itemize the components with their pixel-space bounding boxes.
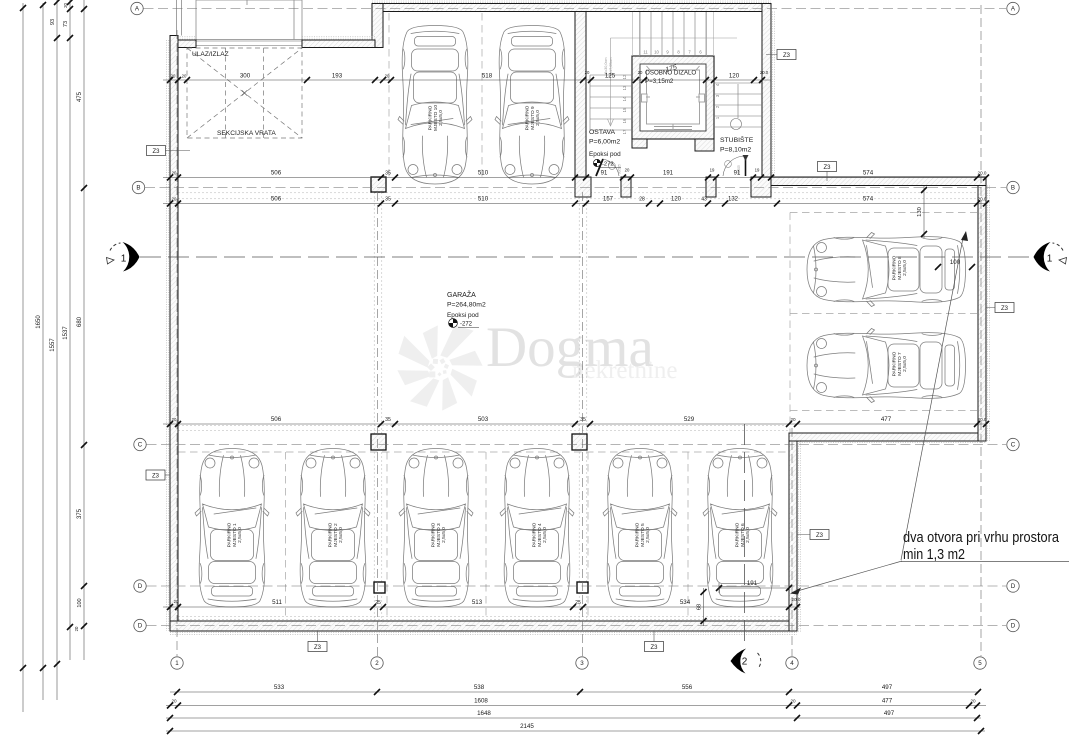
- svg-text:2,5x5,0: 2,5x5,0: [902, 260, 908, 276]
- svg-text:120: 120: [729, 73, 740, 80]
- svg-text:477: 477: [882, 698, 893, 705]
- svg-text:16: 16: [622, 118, 627, 123]
- svg-text:2,5x5,0: 2,5x5,0: [438, 110, 444, 126]
- svg-text:MJESTO 3: MJESTO 3: [436, 523, 442, 547]
- svg-text:2,5x5,0: 2,5x5,0: [542, 527, 548, 543]
- svg-text:13: 13: [622, 85, 627, 90]
- svg-text:193: 193: [332, 73, 343, 80]
- svg-text:93: 93: [50, 19, 56, 25]
- svg-text:12: 12: [622, 74, 627, 79]
- svg-text:D: D: [1011, 583, 1016, 590]
- svg-text:4: 4: [790, 660, 794, 667]
- svg-text:120: 120: [671, 197, 682, 203]
- svg-text:2: 2: [375, 660, 379, 667]
- svg-text:PARKIRNO: PARKIRNO: [525, 105, 531, 130]
- svg-text:130: 130: [917, 207, 923, 217]
- svg-text:35: 35: [385, 197, 391, 203]
- svg-text:68: 68: [697, 604, 703, 610]
- svg-text:25: 25: [575, 600, 581, 606]
- svg-text:2145: 2145: [520, 723, 534, 730]
- svg-text:20: 20: [970, 699, 976, 704]
- svg-text:503: 503: [478, 416, 489, 423]
- svg-text:dva otvora pri vrhu prostora: dva otvora pri vrhu prostora: [903, 530, 1060, 546]
- svg-text:2,5x5,0: 2,5x5,0: [338, 527, 344, 543]
- svg-text:477: 477: [881, 416, 892, 423]
- svg-text:3: 3: [580, 660, 584, 667]
- svg-text:P=3,15m2: P=3,15m2: [645, 78, 674, 85]
- svg-text:Epoksi pod: Epoksi pod: [447, 312, 479, 319]
- svg-text:125: 125: [605, 73, 616, 80]
- svg-text:20: 20: [63, 3, 68, 8]
- svg-text:nekretnine: nekretnine: [572, 357, 678, 384]
- svg-text:17: 17: [622, 129, 627, 134]
- svg-text:Epoksi pod: Epoksi pod: [589, 151, 621, 158]
- svg-text:Z3: Z3: [823, 165, 831, 171]
- svg-text:-272: -272: [602, 162, 614, 168]
- svg-text:PARKIRNO: PARKIRNO: [892, 351, 898, 376]
- svg-text:PARKIRNO: PARKIRNO: [735, 522, 741, 547]
- svg-text:MJESTO 2: MJESTO 2: [333, 523, 339, 547]
- svg-text:20: 20: [385, 74, 390, 79]
- svg-text:1557: 1557: [50, 338, 56, 352]
- svg-text:534: 534: [680, 599, 691, 606]
- svg-text:1: 1: [1047, 254, 1053, 265]
- svg-text:1: 1: [121, 254, 127, 265]
- svg-text:MJESTO 6: MJESTO 6: [740, 523, 746, 547]
- svg-text:C: C: [138, 442, 143, 449]
- svg-text:20: 20: [174, 599, 179, 604]
- svg-text:5: 5: [978, 660, 982, 667]
- svg-text:14: 14: [622, 96, 627, 101]
- svg-text:35: 35: [385, 417, 391, 423]
- svg-text:28: 28: [639, 197, 645, 203]
- svg-text:2: 2: [742, 657, 748, 668]
- svg-text:35: 35: [580, 417, 586, 423]
- svg-text:1: 1: [175, 660, 179, 667]
- svg-text:497: 497: [882, 684, 893, 691]
- svg-text:20: 20: [172, 197, 177, 202]
- svg-text:90/205: 90/205: [618, 164, 622, 174]
- svg-text:20: 20: [790, 699, 796, 704]
- svg-text:MJESTO 5: MJESTO 5: [640, 523, 646, 547]
- svg-text:91: 91: [734, 171, 741, 177]
- svg-text:MJESTO 9: MJESTO 9: [530, 106, 536, 130]
- svg-text:191: 191: [663, 171, 674, 177]
- svg-text:20: 20: [585, 70, 590, 75]
- svg-text:MJESTO 1: MJESTO 1: [232, 523, 238, 547]
- svg-text:Z3: Z3: [152, 473, 160, 479]
- svg-text:PARKIRNO: PARKIRNO: [428, 105, 434, 130]
- svg-text:D: D: [138, 623, 143, 630]
- svg-text:20: 20: [790, 417, 796, 422]
- svg-text:73: 73: [63, 21, 69, 27]
- svg-text:MJESTO 10: MJESTO 10: [433, 105, 439, 131]
- svg-text:Z3: Z3: [783, 53, 791, 59]
- svg-text:556: 556: [682, 684, 693, 691]
- svg-text:157: 157: [603, 197, 614, 203]
- svg-text:P=8,10m2: P=8,10m2: [720, 147, 751, 154]
- svg-text:-272: -272: [460, 322, 473, 328]
- svg-text:574: 574: [863, 170, 874, 177]
- svg-text:2,5x5,0: 2,5x5,0: [902, 356, 908, 372]
- svg-text:D: D: [1011, 623, 1016, 630]
- svg-text:Z3: Z3: [816, 533, 824, 539]
- svg-text:PARKIRNO: PARKIRNO: [532, 522, 538, 547]
- svg-text:132: 132: [728, 197, 739, 203]
- svg-text:25: 25: [375, 600, 381, 606]
- svg-text:20: 20: [172, 417, 177, 422]
- svg-text:B: B: [136, 185, 140, 192]
- svg-text:MJESTO 7: MJESTO 7: [897, 352, 903, 376]
- svg-text:2,5x5,0: 2,5x5,0: [441, 527, 447, 543]
- svg-text:1608: 1608: [474, 698, 488, 705]
- svg-text:P=264,80m2: P=264,80m2: [447, 302, 486, 309]
- svg-text:PARKIRNO: PARKIRNO: [431, 522, 437, 547]
- svg-text:511: 511: [272, 599, 282, 606]
- svg-text:B: B: [1011, 185, 1015, 192]
- svg-text:10: 10: [654, 50, 659, 55]
- svg-text:43: 43: [701, 197, 707, 203]
- svg-text:513: 513: [472, 599, 483, 606]
- svg-text:510: 510: [478, 196, 489, 203]
- svg-text:11: 11: [643, 50, 648, 55]
- svg-text:475: 475: [77, 91, 83, 102]
- svg-text:100: 100: [77, 598, 83, 607]
- svg-text:20: 20: [74, 626, 79, 631]
- svg-text:518: 518: [482, 73, 493, 80]
- svg-text:min 1,3 m2: min 1,3 m2: [903, 547, 965, 563]
- svg-text:20: 20: [171, 74, 176, 79]
- svg-text:20: 20: [171, 699, 177, 704]
- svg-text:GARAŽA: GARAŽA: [447, 290, 476, 299]
- svg-text:20: 20: [182, 74, 187, 79]
- svg-text:191: 191: [747, 580, 758, 587]
- svg-text:20.0: 20.0: [978, 171, 987, 176]
- svg-text:SEKCIJSKA VRATA: SEKCIJSKA VRATA: [217, 130, 276, 137]
- svg-text:MJESTO 4: MJESTO 4: [537, 523, 543, 547]
- svg-text:529: 529: [684, 416, 695, 423]
- svg-text:P=6,00m2: P=6,00m2: [589, 139, 620, 146]
- svg-text:2,5x5,0: 2,5x5,0: [645, 527, 651, 543]
- svg-text:506: 506: [271, 196, 282, 203]
- svg-text:533: 533: [274, 684, 285, 691]
- svg-text:D: D: [138, 583, 143, 590]
- svg-text:1648: 1648: [477, 710, 491, 717]
- svg-text:C: C: [1011, 442, 1016, 449]
- svg-text:20.0: 20.0: [760, 70, 769, 75]
- svg-text:15: 15: [622, 107, 627, 112]
- svg-text:1537: 1537: [63, 326, 69, 340]
- svg-text:2,5x5,0: 2,5x5,0: [745, 527, 751, 543]
- svg-text:ULAZ/IZLAZ: ULAZ/IZLAZ: [192, 51, 229, 58]
- svg-text:MJESTO 8: MJESTO 8: [897, 256, 903, 280]
- svg-text:20.0: 20.0: [978, 197, 987, 202]
- svg-text:91: 91: [601, 171, 608, 177]
- svg-text:Z3: Z3: [1001, 306, 1009, 312]
- svg-text:19: 19: [710, 168, 715, 173]
- svg-text:20.0: 20.0: [792, 597, 801, 602]
- svg-text:574: 574: [863, 196, 874, 203]
- svg-text:PARKIRNO: PARKIRNO: [635, 522, 641, 547]
- svg-text:538: 538: [474, 684, 485, 691]
- svg-text:20: 20: [638, 70, 643, 75]
- svg-text:STUBIŠTE: STUBIŠTE: [720, 135, 754, 144]
- svg-text:680: 680: [77, 316, 83, 327]
- svg-text:PARKIRNO: PARKIRNO: [892, 255, 898, 280]
- svg-text:1650: 1650: [36, 315, 42, 329]
- svg-text:Z3: Z3: [152, 149, 160, 155]
- svg-text:19: 19: [755, 168, 760, 173]
- svg-text:2,5x5,0: 2,5x5,0: [237, 527, 243, 543]
- svg-text:20: 20: [625, 168, 630, 173]
- svg-text:Z3: Z3: [650, 645, 658, 651]
- svg-text:OSTAVA: OSTAVA: [589, 129, 616, 136]
- svg-text:506: 506: [271, 170, 282, 177]
- svg-text:300: 300: [240, 73, 251, 80]
- svg-text:375: 375: [77, 508, 83, 519]
- svg-text:510: 510: [478, 170, 489, 177]
- svg-text:35: 35: [385, 171, 391, 177]
- svg-text:2,5x5,0: 2,5x5,0: [535, 110, 541, 126]
- svg-text:497: 497: [884, 710, 895, 717]
- svg-text:20.0: 20.0: [978, 417, 987, 422]
- svg-text:20: 20: [172, 171, 177, 176]
- svg-text:506: 506: [271, 416, 282, 423]
- svg-text:PARKIRNO: PARKIRNO: [328, 522, 334, 547]
- svg-text:Z3: Z3: [314, 645, 322, 651]
- svg-text:PARKIRNO: PARKIRNO: [227, 522, 233, 547]
